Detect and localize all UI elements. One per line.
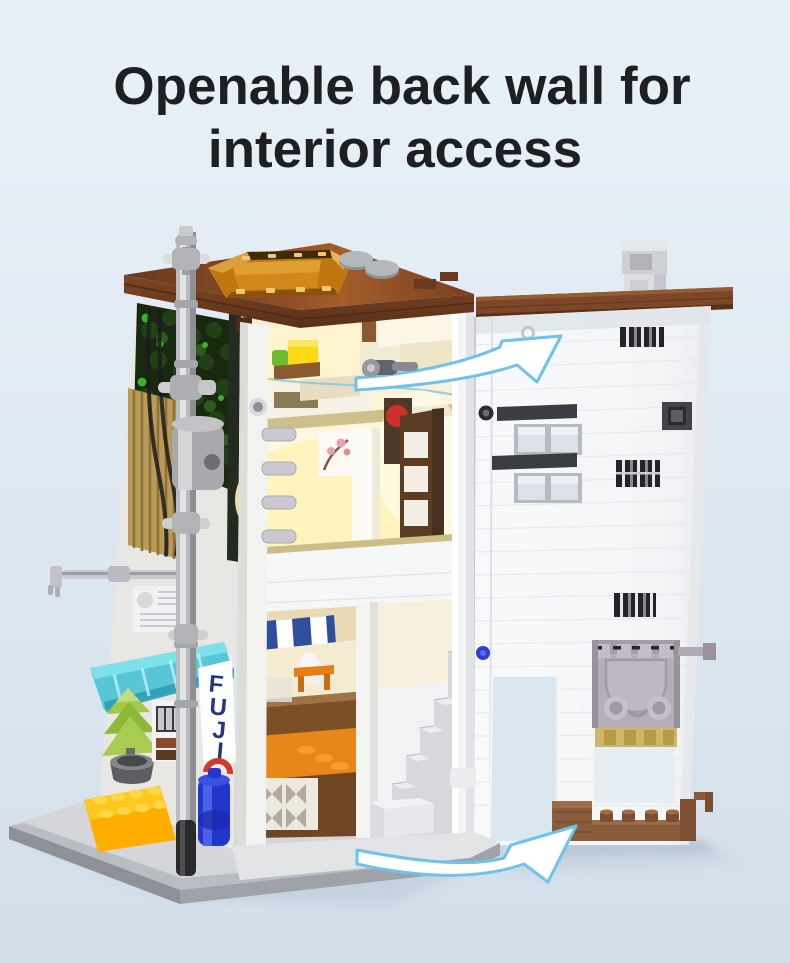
svg-text:Openable back wall for: Openable back wall for — [113, 57, 690, 116]
svg-text:interior access: interior access — [208, 120, 582, 179]
